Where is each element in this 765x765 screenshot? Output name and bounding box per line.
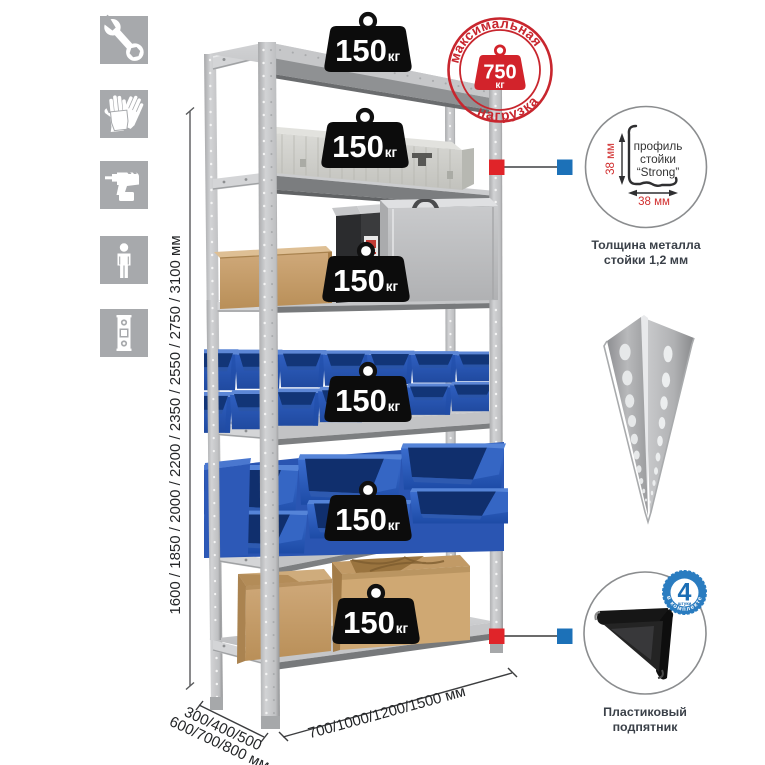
svg-text:Пластиковый: Пластиковый xyxy=(603,705,687,719)
svg-text:профиль: профиль xyxy=(634,139,683,153)
svg-text:штуки: штуки xyxy=(678,601,692,606)
svg-text:1600 / 1850 / 2000 / 2200 / 23: 1600 / 1850 / 2000 / 2200 / 2350 / 2550 … xyxy=(167,235,184,614)
svg-text:кг: кг xyxy=(495,80,504,91)
svg-text:стойки 1,2 мм: стойки 1,2 мм xyxy=(604,253,688,267)
svg-text:стойки: стойки xyxy=(640,152,676,166)
svg-text:подпятник: подпятник xyxy=(613,720,679,734)
svg-text:Толщина металла: Толщина металла xyxy=(591,238,700,252)
svg-text:38 мм: 38 мм xyxy=(638,196,670,208)
svg-text:38 мм: 38 мм xyxy=(605,143,617,175)
svg-text:“Strong”: “Strong” xyxy=(637,165,680,179)
